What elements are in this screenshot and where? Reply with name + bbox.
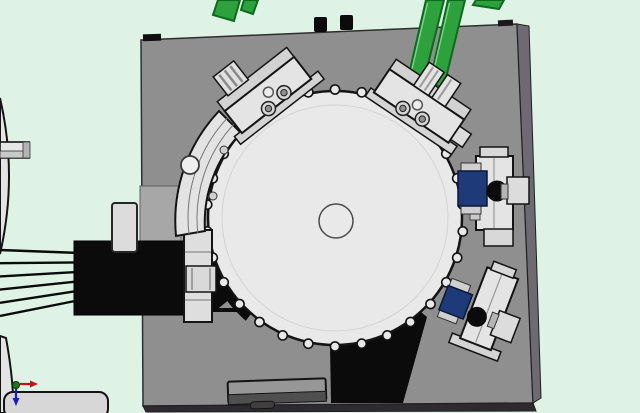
disc-center-hole[interactable] <box>319 204 353 238</box>
origin-point <box>13 382 20 389</box>
plate-edge-post-left[interactable] <box>314 17 327 32</box>
disc-notch <box>453 253 462 262</box>
disc-notch <box>383 331 392 340</box>
disc-notch <box>330 342 339 351</box>
left-arm[interactable] <box>0 142 30 158</box>
bracket-clamp[interactable] <box>186 266 216 292</box>
disc-notch <box>357 339 366 348</box>
plate-corner-nub-right <box>498 20 513 27</box>
guide-rail-bolt <box>209 192 217 200</box>
disc-notch <box>278 331 287 340</box>
disc-notch <box>426 299 435 308</box>
disc-notch <box>304 339 313 348</box>
disc-notch <box>458 227 467 236</box>
cad-viewport[interactable] <box>0 0 640 413</box>
navy-gripper-block[interactable] <box>458 171 487 206</box>
motor-lead-wire <box>0 262 80 263</box>
bottom-left-block[interactable] <box>4 392 108 413</box>
guide-rail-hole[interactable] <box>181 156 199 174</box>
station-bottom-step <box>484 229 513 246</box>
plate-corner-nub-left <box>143 34 161 42</box>
tab-connector <box>501 184 508 199</box>
disc-notch <box>235 299 244 308</box>
station-end-tab <box>507 177 529 204</box>
disc-notch <box>219 278 228 287</box>
left-standoff-block[interactable] <box>112 203 137 252</box>
left-arm-end-cap <box>23 142 30 158</box>
disc-notch <box>255 317 264 326</box>
disc-notch <box>406 317 415 326</box>
disc-notch <box>330 85 339 94</box>
plate-edge-post-right[interactable] <box>340 15 353 30</box>
model-view[interactable] <box>0 0 640 413</box>
station-top-step <box>480 147 508 157</box>
guide-rail-bolt <box>220 146 228 154</box>
slot-cover-tab <box>250 401 274 409</box>
